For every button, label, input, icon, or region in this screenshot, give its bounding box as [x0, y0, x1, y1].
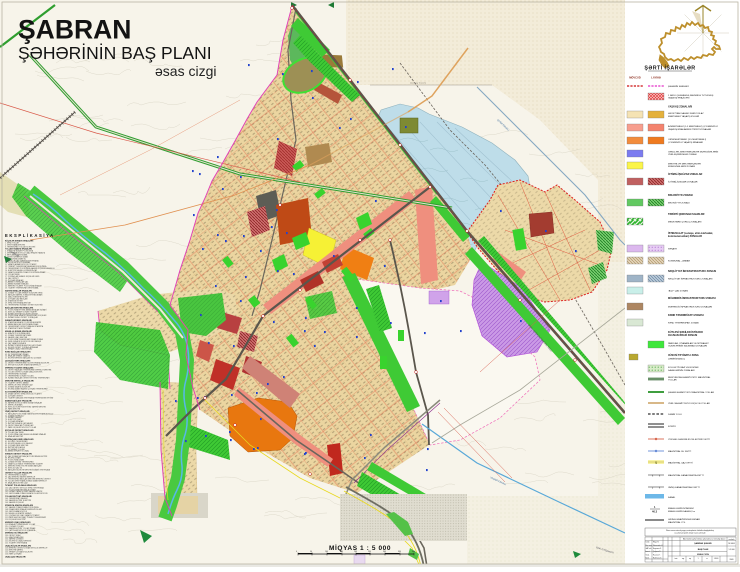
svg-text:PARKLAR, XİYABANLAR VƏ İSTİRAH: PARKLAR, XİYABANLAR VƏ İSTİRAHƏT: [668, 342, 709, 345]
svg-text:39. STANSİYA TİCARƏT İNZİBATİ: 39. STANSİYA TİCARƏT İNZİBATİ: [5, 327, 31, 330]
svg-text:OLUNAN ƏRAZİ ZONASI: OLUNAN ƏRAZİ ZONASI: [668, 334, 697, 337]
svg-text:SƏNAYE: SƏNAYE: [668, 248, 677, 251]
svg-text:Baş mem.: Baş mem.: [646, 545, 653, 547]
svg-text:EKSPLİKASİYA: EKSPLİKASİYA: [5, 233, 55, 238]
svg-text:Məmmədov H.: Məmmədov H.: [653, 545, 663, 547]
svg-text:əsas cizgi: əsas cizgi: [155, 63, 216, 79]
svg-text:MAGİSTRAL SU XƏTTİ: MAGİSTRAL SU XƏTTİ: [668, 450, 692, 453]
svg-text:SAHƏLƏRİNİN ZONALARI: SAHƏLƏRİNİN ZONALARI: [668, 369, 695, 372]
svg-text:MƏHƏLLƏNİN NÖMRƏSİ: MƏHƏLLƏNİN NÖMRƏSİ: [668, 507, 694, 510]
svg-text:KANAL: KANAL: [668, 496, 676, 499]
svg-text:MƏHƏLLƏNİN SAHƏSİ, ha: MƏHƏLLƏNİN SAHƏSİ, ha: [668, 510, 696, 513]
svg-text:122. TİCARƏT XƏSTƏXANA: 122. TİCARƏT XƏSTƏXANA: [5, 542, 28, 545]
svg-text:117. QAZ EVLƏRİ MÖVCUD STANSİY: 117. QAZ EVLƏRİ MÖVCUD STANSİYA: [5, 529, 36, 532]
svg-text:MÜƏSSİSƏLƏRİN ZONASI: MÜƏSSİSƏLƏRİN ZONASI: [668, 165, 695, 168]
svg-text:AZMƏRTƏBƏLİ (1-3 MƏRTƏBƏLİ) ÇO: AZMƏRTƏBƏLİ (1-3 MƏRTƏBƏLİ) ÇOXMƏNZİLLİ: [668, 125, 718, 128]
svg-text:Əliyev R.: Əliyev R.: [653, 542, 660, 544]
svg-text:XÜSUSİ TƏYİNATLI ZONA: XÜSUSİ TƏYİNATLI ZONA: [668, 354, 699, 357]
svg-text:48. SƏNAYE UŞAQ STANSİYA QAZ: 48. SƏNAYE UŞAQ STANSİYA QAZ: [5, 348, 32, 351]
svg-text:ŞABRAN ŞƏHƏRİ: ŞABRAN ŞƏHƏRİ: [694, 542, 712, 545]
svg-text:UŞAQ QAZ ƏRAZİLƏRİ: UŞAQ QAZ ƏRAZİLƏRİ: [5, 556, 26, 559]
svg-text:200: 200: [354, 551, 357, 553]
svg-text:Yoxla.: Yoxla.: [646, 554, 651, 556]
svg-text:300: 300: [383, 551, 386, 553]
svg-text:ORTA MƏRTƏBƏLİ (3-5 MƏRTƏBƏLİ): ORTA MƏRTƏBƏLİ (3-5 MƏRTƏBƏLİ): [668, 138, 706, 141]
svg-text:Həsənov T.: Həsənov T.: [653, 554, 661, 556]
svg-text:250: 250: [368, 551, 371, 553]
svg-text:YAŞAYIŞ ƏRAZİLƏRİ: YAŞAYIŞ ƏRAZİLƏRİ: [668, 97, 690, 100]
svg-text:DƏMİR YOLU: DƏMİR YOLU: [668, 413, 682, 416]
svg-text:86. ANBAR SƏNAYE SU UŞAQ: 86. ANBAR SƏNAYE SU UŞAQ: [5, 450, 30, 453]
svg-text:96 9606: 96 9606: [728, 543, 735, 545]
svg-text:YAŞAYIŞ BİNALARININ TİKİNTİ ZO: YAŞAYIŞ BİNALARININ TİKİNTİ ZONALARI: [668, 128, 711, 131]
svg-text:65. TİCARƏT BAĞÇASI XƏSTƏXANA: 65. TİCARƏT BAĞÇASI XƏSTƏXANA TƏSƏRRÜFAT…: [5, 396, 53, 399]
svg-text:Quliyeva N.: Quliyeva N.: [653, 551, 661, 553]
svg-text:MEŞƏ-PARK QORUQ ZONALARI: MEŞƏ-PARK QORUQ ZONALARI: [668, 221, 702, 224]
svg-text:126. PARK QOVŞAĞI: 126. PARK QOVŞAĞI: [5, 553, 22, 556]
svg-text:YAŞAYIŞ ZONALARI: YAŞAYIŞ ZONALARI: [668, 106, 692, 109]
svg-text:LAYİHƏ ƏRAZİSİNDƏN KƏNAR: LAYİHƏ ƏRAZİSİNDƏN KƏNAR: [668, 518, 700, 521]
svg-text:62. EVLƏRİ İDMAN YAŞAYIŞ QOVŞA: 62. EVLƏRİ İDMAN YAŞAYIŞ QOVŞAĞI TƏSƏRRÜ…: [5, 387, 48, 390]
svg-text:53. EHTİYAT KÜÇƏLƏR STANSİYA M: 53. EHTİYAT KÜÇƏLƏR STANSİYA MƏHƏLLƏ: [5, 364, 41, 367]
svg-text:Qaraçay massivi: Qaraçay massivi: [410, 82, 427, 85]
svg-text:HƏYƏTYANI SAHƏLİ FƏRDİ VƏ AZ: HƏYƏTYANI SAHƏLİ FƏRDİ VƏ AZ: [668, 112, 704, 115]
svg-text:MAGİSTRAL QAZ XƏTTİ: MAGİSTRAL QAZ XƏTTİ: [668, 462, 693, 465]
svg-text:51. EVLƏRİ MƏRKƏZİ BAĞÇASI SU: 51. EVLƏRİ MƏRKƏZİ BAĞÇASI SU QOVŞAĞI: [5, 357, 42, 360]
svg-text:QƏBİRİSTANLIQ: QƏBİRİSTANLIQ: [668, 358, 685, 361]
svg-text:1:5000: 1:5000: [714, 558, 719, 560]
svg-text:YAĞIŞ KANALİZASİYASI XƏTTİ: YAĞIŞ KANALİZASİYASI XƏTTİ: [668, 486, 700, 489]
svg-text:NƏQLİYYAT İNFRASTRUKTURU ZONAL: NƏQLİYYAT İNFRASTRUKTURU ZONALARI: [668, 278, 713, 281]
svg-text:ŞƏRTİ İŞARƏLƏR: ŞƏRTİ İŞARƏLƏR: [644, 65, 695, 72]
svg-text:say: say: [682, 558, 685, 560]
svg-text:77. PARK KÜÇƏLƏR MÖVCUD YOLLAR: 77. PARK KÜÇƏLƏR MÖVCUD YOLLAR: [5, 426, 37, 429]
svg-text:Rəhimova G.: Rəhimova G.: [653, 558, 662, 560]
svg-text:150: 150: [340, 551, 343, 553]
svg-text:58. İNZİBATİ BAĞÇASI OBYEKT EH: 58. İNZİBATİ BAĞÇASI OBYEKT EHTİYAT TƏSƏ…: [5, 377, 50, 380]
svg-text:KOMMUNAL - ANBAR: KOMMUNAL - ANBAR: [668, 260, 690, 263]
svg-text:GƏNCLƏR, MƏKTƏBƏQƏDƏR MÜƏSSİSƏ: GƏNCLƏR, MƏKTƏBƏQƏDƏR MÜƏSSİSƏLƏRİN: [668, 151, 719, 154]
svg-text:İCTİMAİ-İŞGÜZAR ZONALAR: İCTİMAİ-İŞGÜZAR ZONALAR: [668, 173, 702, 176]
svg-text:BƏLƏDİYYƏ ZONASI: BƏLƏDİYYƏ ZONASI: [668, 202, 690, 205]
svg-text:100: 100: [325, 551, 328, 553]
svg-text:KƏND TƏSƏRRÜFATI ZONASI: KƏND TƏSƏRRÜFATI ZONASI: [668, 314, 704, 317]
svg-text:YOLLAR: YOLLAR: [668, 379, 677, 382]
svg-text:1 SAYLI QƏSƏBƏDƏ NƏZƏRDƏ TUTUL: 1 SAYLI QƏSƏBƏDƏ NƏZƏRDƏ TUTULMUŞ: [668, 94, 714, 97]
svg-text:YÜKSƏK GƏRGİNLİKLİ ELEKTRİK XƏ: YÜKSƏK GƏRGİNLİKLİ ELEKTRİK XƏTTİ: [668, 438, 710, 441]
svg-text:35. İNZİBATİ KƏND OBYEKT TORPA: 35. İNZİBATİ KƏND OBYEKT TORPAQLAR: [5, 316, 39, 319]
svg-text:MÜHƏNDİS İNFRASTRUKTURU ZONALA: MÜHƏNDİS İNFRASTRUKTURU ZONALARI: [668, 306, 712, 309]
svg-text:MAGİSTRAL KANALİZASİYA XƏTTİ: MAGİSTRAL KANALİZASİYA XƏTTİ: [668, 474, 704, 477]
svg-text:MÜHƏNDİS İNFRASTRUKTURU ZONASI: MÜHƏNDİS İNFRASTRUKTURU ZONASI: [668, 297, 716, 300]
svg-text:KOLLEKTİV BAĞ VƏ BOSTAN: KOLLEKTİV BAĞ VƏ BOSTAN: [668, 366, 699, 369]
svg-text:400: 400: [412, 551, 415, 553]
svg-text:106. SAHƏSİ KÜÇƏLƏR: 106. SAHƏSİ KÜÇƏLƏR: [5, 501, 25, 504]
svg-text:80. BİNALAR MƏKTƏB: 80. BİNALAR MƏKTƏB: [5, 435, 24, 438]
svg-text:50: 50: [310, 551, 312, 553]
svg-text:ŞƏHƏRİNİN BAŞ PLANI: ŞƏHƏRİNİN BAŞ PLANI: [18, 43, 212, 63]
svg-text:KƏND TƏSƏRRÜFATI ZONASI: KƏND TƏSƏRRÜFATI ZONASI: [668, 322, 699, 325]
svg-text:ŞƏHƏRİN SƏRHƏDİ: ŞƏHƏRİN SƏRHƏDİ: [668, 85, 689, 88]
svg-text:ŞABRAN: ŞABRAN: [18, 15, 131, 45]
svg-text:mərhələ: mərhələ: [729, 539, 735, 541]
svg-text:MİQYAS 1 : 5 000: MİQYAS 1 : 5 000: [329, 544, 391, 552]
svg-text:YERLƏŞDİRİLMƏSİ ZONASI: YERLƏŞDİRİLMƏSİ ZONASI: [668, 153, 697, 156]
svg-text:İCTİMAİ-İŞGÜZAR ZONALAR: İCTİMAİ-İŞGÜZAR ZONALAR: [668, 181, 698, 184]
svg-text:GUŞƏLƏRİNİN SALINMASI ZONALARI: GUŞƏLƏRİNİN SALINMASI ZONALARI: [668, 345, 707, 348]
svg-text:113. KÜÇƏLƏR ELEKTRİK: 113. KÜÇƏLƏR ELEKTRİK: [5, 518, 26, 521]
svg-text:"AQV" QAZ ZONASI: "AQV" QAZ ZONASI: [668, 290, 688, 293]
svg-text:23. TİCARƏT TƏSƏRRÜFATI XƏSTƏX: 23. TİCARƏT TƏSƏRRÜFATI XƏSTƏXANA: [5, 287, 39, 290]
svg-text:ƏSAS CİZGİ: ƏSAS CİZGİ: [697, 553, 709, 556]
svg-text:NƏQLİYYAT İNFRASTRUKTURU ZONAS: NƏQLİYYAT İNFRASTRUKTURU ZONASI: [668, 270, 716, 273]
svg-text:ÇOXMƏNZİLLİ YAŞAYIŞ BİNALARI: ÇOXMƏNZİLLİ YAŞAYIŞ BİNALARI: [668, 141, 703, 144]
svg-text:103. XƏSTƏXANA ZONASI SƏNAYE E: 103. XƏSTƏXANA ZONASI SƏNAYE EVLƏRİ MÖVC…: [5, 492, 49, 495]
svg-text:KÖRPÜ: KÖRPÜ: [668, 425, 676, 428]
svg-text:RESPUBLİKA ƏHƏMİYYƏTLİ MAGİSTR: RESPUBLİKA ƏHƏMİYYƏTLİ MAGİSTRAL: [668, 376, 711, 379]
svg-text:Q: Q: [655, 460, 657, 464]
svg-text:1:5 000: 1:5 000: [729, 549, 735, 551]
svg-text:TƏBİƏTİ QORUNAN SAHƏLƏR: TƏBİƏTİ QORUNAN SAHƏLƏR: [668, 213, 705, 216]
svg-text:0: 0: [296, 551, 297, 553]
svg-text:2009: 2009: [730, 559, 734, 561]
svg-text:BƏLƏDİYYƏ ZONASI: BƏLƏDİYYƏ ZONASI: [668, 194, 693, 197]
svg-text:40.3: 40.3: [652, 509, 658, 513]
svg-text:99. BİNALAR ELEKTRİK QAZ: 99. BİNALAR ELEKTRİK QAZ: [5, 481, 28, 484]
svg-text:30. TƏSƏRRÜFATI İNZİBATİ OBYEK: 30. TƏSƏRRÜFATI İNZİBATİ OBYEKT ELEKTRİK: [5, 303, 44, 306]
svg-text:kommunal-anbar) ZONALAR: kommunal-anbar) ZONALAR: [668, 235, 702, 238]
svg-text:ŞƏHƏR ƏHƏMİYYƏTLİ MAGİSTRAL YO: ŞƏHƏR ƏHƏMİYYƏTLİ MAGİSTRAL YOLLAR: [668, 391, 714, 394]
svg-text:MƏRTƏBƏLİ YAŞAYIŞ EVLƏRİ: MƏRTƏBƏLİ YAŞAYIŞ EVLƏRİ: [668, 115, 699, 118]
svg-text:BAŞ PLAN: BAŞ PLAN: [698, 548, 709, 551]
svg-text:69. PARK MƏKTƏB: 69. PARK MƏKTƏB: [5, 407, 21, 410]
svg-text:94. BAĞÇASI KÜÇƏLƏR MƏKTƏB İNZ: 94. BAĞÇASI KÜÇƏLƏR MƏKTƏB İNZİBATİ XƏST…: [5, 468, 51, 471]
svg-text:YERLİ ƏHƏMİYYƏTLİ KÜÇƏ VƏ YOLL: YERLİ ƏHƏMİYYƏTLİ KÜÇƏ VƏ YOLLAR: [668, 402, 710, 405]
svg-text:350: 350: [398, 551, 401, 553]
svg-text:MAGİSTRAL YOL: MAGİSTRAL YOL: [668, 521, 686, 524]
